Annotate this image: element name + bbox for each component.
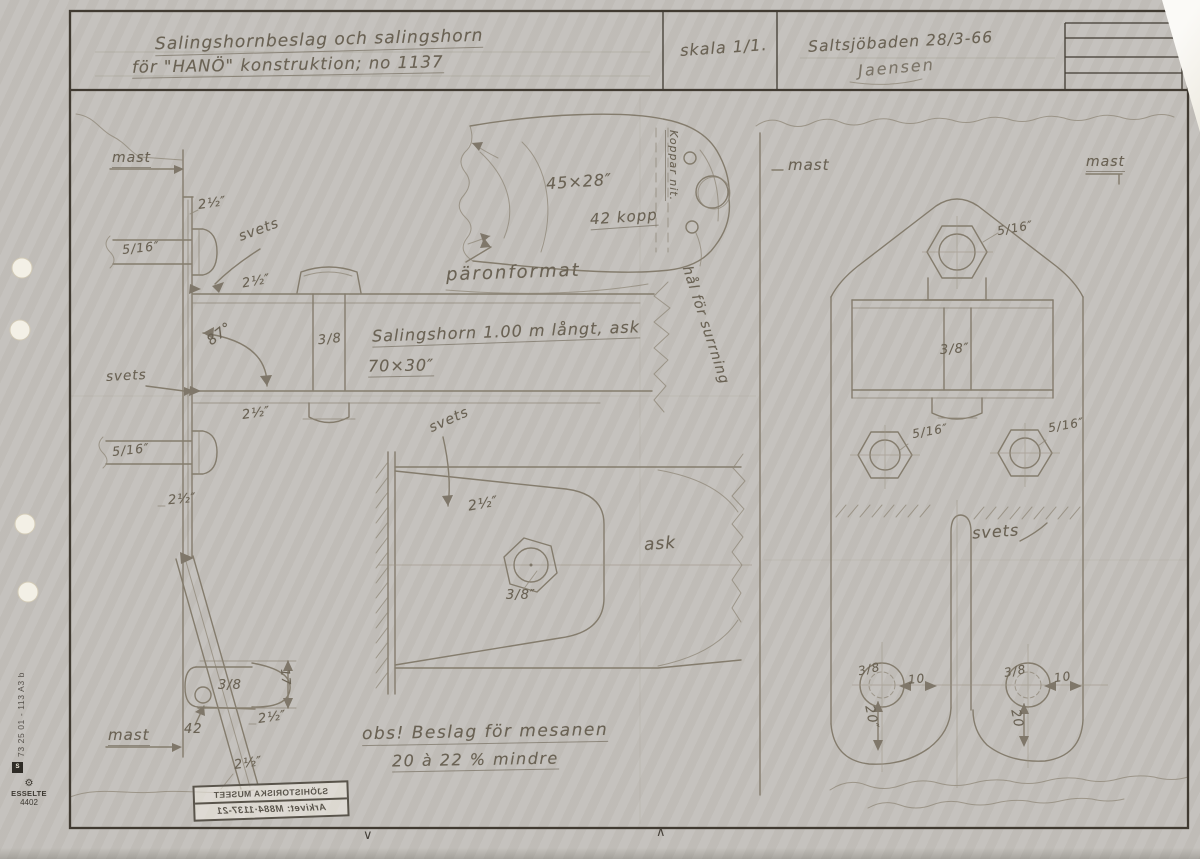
- dim-42: 42: [184, 722, 203, 737]
- dim-10-left: 10: [907, 671, 926, 687]
- bracket-front-view: [756, 115, 1188, 809]
- label-mast-middle: mast: [788, 156, 830, 174]
- dim-3-8-lug: 3/8: [218, 678, 242, 693]
- paper-bottom-edge: [0, 848, 1200, 859]
- museum-stamp: SJÖHISTORISKA MUSEET Arkivet: M884·1137-…: [192, 780, 349, 821]
- note-line1: obs! Beslag för mesanen: [362, 720, 609, 746]
- fold-mark-left: ∨: [363, 828, 373, 843]
- esselte-gear-icon: ⚙: [5, 779, 53, 789]
- wood-label-ask: ask: [643, 533, 676, 555]
- label-svets-right: svets: [971, 520, 1019, 542]
- fold-mark-right: ∧: [656, 825, 666, 840]
- rivet-note-vertical: Koppar nit.: [665, 130, 680, 201]
- edge-print-code: 73 25 01 - 113 A3 b: [16, 672, 26, 757]
- note-line2: 20 à 22 % mindre: [392, 749, 559, 773]
- label-svets-left: svets: [106, 367, 147, 385]
- label-mast-top-left: mast: [112, 150, 151, 168]
- esselte-brand-name: ESSELTE: [5, 789, 53, 798]
- left-view-mast-bracket: [70, 114, 670, 797]
- label-mast-top-right: mast: [1086, 154, 1125, 172]
- dim-17: 17: [278, 668, 293, 686]
- bracket-side-view: [376, 133, 783, 795]
- dim-10-right: 10: [1053, 669, 1072, 685]
- scanned-drawing-sheet: Salingshornbeslag och salingshorn för "H…: [0, 0, 1200, 859]
- standards-mark: S: [12, 762, 23, 773]
- dim-3-8-midnut: 3/8″: [506, 588, 536, 603]
- dim-3-8-band: 3/8″: [940, 341, 971, 358]
- esselte-product-number: 4402: [5, 798, 53, 807]
- dim-3-8-bolt: 3/8: [317, 331, 342, 348]
- dim-2-5-d: 2½″: [167, 491, 197, 508]
- esselte-logo: ⚙ ESSELTE 4402: [5, 779, 53, 807]
- label-mast-bottom-left: mast: [108, 726, 150, 746]
- spar-note-line2: 70×30″: [368, 355, 434, 377]
